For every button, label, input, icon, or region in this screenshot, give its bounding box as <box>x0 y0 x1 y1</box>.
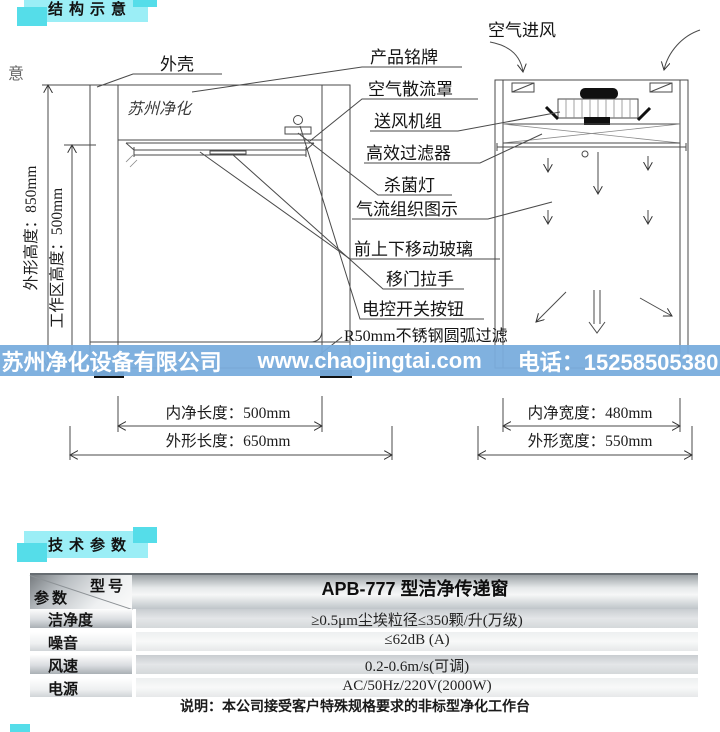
row-value: ≥0.5μm尘埃粒径≤350颗/升(万级) <box>136 609 698 628</box>
row-value: ≤62dB (A) <box>136 632 698 651</box>
callout-shell: 外壳 <box>160 55 194 74</box>
vertical-dimensions: 外形高度：850mm 工作区高度：500mm <box>22 85 96 368</box>
callout-hepa-filter: 高效过滤器 <box>366 144 451 163</box>
side-view-device <box>495 80 688 368</box>
callout-uv-lamp: 杀菌灯 <box>384 176 435 195</box>
company-name: 苏州净化设备有限公司 <box>2 345 222 377</box>
length-dimensions: 内净长度：500mm 外形长度：650mm <box>70 396 392 460</box>
callout-door-handle: 移门拉手 <box>386 270 454 289</box>
table-row: 噪音 ≤62dB (A) <box>30 632 698 651</box>
spec-table: 型号 参数 APB-777 型洁净传递窗 洁净度 ≥0.5μm尘埃粒径≤350颗… <box>30 573 698 703</box>
row-label: 洁净度 <box>30 609 132 628</box>
dim-outer-width: 外形宽度：550mm <box>528 432 653 450</box>
corner-model-label: 型号 <box>90 575 126 596</box>
hepa-filter-shape <box>497 124 686 157</box>
nameplate-shape <box>285 127 311 134</box>
callout-switch-button: 电控开关按钮 <box>362 300 464 319</box>
table-row: 洁净度 ≥0.5μm尘埃粒径≤350颗/升(万级) <box>30 609 698 628</box>
air-intake-label: 空气进风 <box>488 21 556 40</box>
dim-outer-length: 外形长度：650mm <box>166 432 291 450</box>
corner-cell: 型号 参数 <box>30 575 132 609</box>
row-value: 0.2-0.6m/s(可调) <box>136 655 698 674</box>
structure-diagram: 苏州净化 <box>0 0 720 460</box>
width-dimensions: 内净宽度：480mm 外形宽度：550mm <box>478 398 692 460</box>
table-note: 说明：本公司接受客户特殊规格要求的非标型净化工作台 <box>180 696 530 716</box>
cropped-text-fragment: 意 <box>8 60 24 84</box>
section-title: 技术参数 <box>48 537 132 554</box>
table-row: 风速 0.2-0.6m/s(可调) <box>30 655 698 674</box>
switch-button-shape <box>294 116 303 125</box>
table-row: 电源 AC/50Hz/220V(2000W) <box>30 678 698 697</box>
dim-outer-height: 外形高度：850mm <box>22 166 40 291</box>
section-title: 结构示意 <box>48 1 132 18</box>
row-label: 风速 <box>30 655 132 674</box>
air-intake-group: 空气进风 <box>488 21 700 72</box>
product-page: 结构示意 意 苏州净化 <box>0 0 720 732</box>
section-header-structure: 结构示意 <box>24 0 148 22</box>
device-brand-print: 苏州净化 <box>127 100 193 118</box>
row-label: 噪音 <box>30 632 132 651</box>
website-text: www.chaojingtai.com <box>258 348 482 374</box>
corner-param-label: 参数 <box>34 587 70 608</box>
dim-inner-width: 内净宽度：480mm <box>528 404 653 422</box>
company-banner: 苏州净化设备有限公司 www.chaojingtai.com 电话：152585… <box>0 345 720 376</box>
callout-fan-unit: 送风机组 <box>374 112 442 131</box>
spec-table-header: 型号 参数 APB-777 型洁净传递窗 <box>30 573 698 609</box>
cut-off-section-marker <box>10 724 30 732</box>
callout-nameplate: 产品铭牌 <box>370 48 438 67</box>
fan-unit-shape <box>546 88 650 125</box>
callout-diffuser: 空气散流罩 <box>368 80 453 99</box>
arc-corner-shape <box>310 330 322 342</box>
air-intake-arrow <box>490 42 523 72</box>
model-name-cell: APB-777 型洁净传递窗 <box>132 575 698 609</box>
section-header-params: 技术参数 <box>24 531 148 558</box>
callout-moving-glass: 前上下移动玻璃 <box>354 240 473 259</box>
callout-airflow-diagram: 气流组织图示 <box>356 200 458 219</box>
phone-text: 电话：15258505380 <box>518 345 719 377</box>
callout-labels: 外壳 产品铭牌 空气散流罩 送风机组 高效过滤器 杀菌灯 气流组织图示 前上下移… <box>97 48 560 356</box>
callout-arc-filter: R50mm不锈钢圆弧过滤 <box>344 327 508 345</box>
air-intake-arrow <box>664 30 700 70</box>
front-view-device: 苏州净化 <box>90 85 352 378</box>
row-label: 电源 <box>30 678 132 697</box>
row-value: AC/50Hz/220V(2000W) <box>136 678 698 697</box>
dim-inner-length: 内净长度：500mm <box>166 404 291 422</box>
airflow-arrows <box>536 152 672 333</box>
dim-work-height: 工作区高度：500mm <box>48 188 66 328</box>
door-handle-shape <box>210 151 246 154</box>
